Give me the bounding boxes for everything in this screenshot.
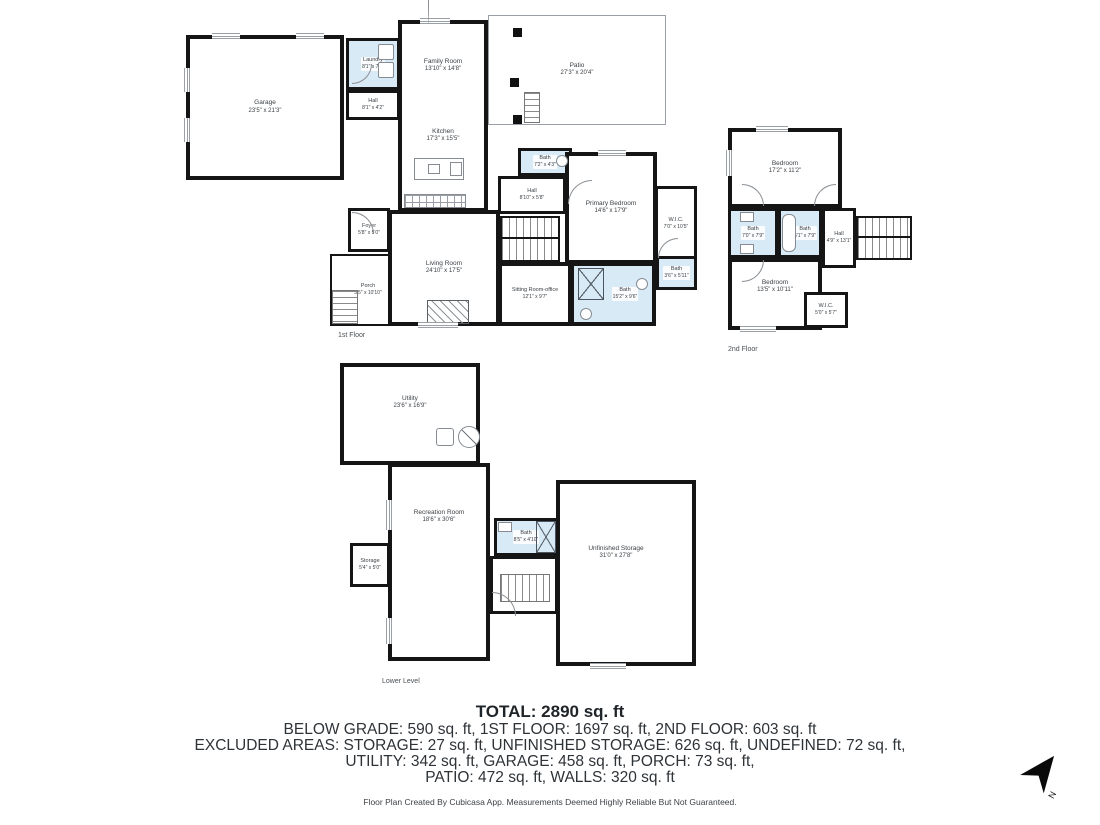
room-label: Bath 7'0" x 7'9" [741,226,765,240]
summary-total: TOTAL: 2890 sq. ft [0,702,1100,722]
room-unfinished-storage: Unfinished Storage 31'0" x 27'8" [556,480,696,666]
door-arc [428,0,429,24]
room-label: Garage 23'5" x 21'3" [249,99,282,115]
room-label: Bath 6'1" x 7'9" [793,226,817,240]
range-icon [450,162,462,176]
sink-icon [428,164,440,174]
room-label: Hall 4'9" x 13'1" [827,231,852,245]
window [386,500,392,530]
room-primary-bedroom: Primary Bedroom 14'6" x 17'9" [565,152,657,264]
room-label: Bath 7'2" x 4'3" [533,155,557,169]
hearth-hatch [427,300,469,324]
room-label: Hall 8'1" x 4'2" [362,98,384,112]
window [212,33,240,39]
room-label: Bath 15'2" x 9'6" [612,287,639,301]
sink-icon [498,522,512,532]
sink-icon [740,212,754,222]
room-garage: Garage 23'5" x 21'3" [186,35,344,180]
hvac-icon [436,428,454,446]
washer-dryer-icon [378,62,394,78]
footer-credit: Floor Plan Created By Cubicasa App. Meas… [0,797,1100,807]
room-family-kitchen [398,20,488,212]
sink-icon [556,155,568,167]
window [184,118,190,142]
summary-line-4: PATIO: 472 sq. ft, WALLS: 320 sq. ft [0,769,1100,787]
water-heater-icon [458,426,480,448]
room-label: Bedroom 13'5" x 10'11" [757,279,793,295]
room-label: W.I.C. 7'0" x 10'5" [664,217,689,231]
room-label: Sitting Room-office 12'1" x 9'7" [512,287,558,301]
shower-icon [578,268,604,300]
sink-icon [740,244,754,254]
room-wic-second: W.I.C. 5'0" x 5'7" [804,292,848,328]
room-label: Family Room 13'10" x 14'8" [398,58,488,74]
floor-label-lower: Lower Level [382,678,420,685]
patio-post [513,115,522,124]
tub-icon [782,214,796,252]
window [598,150,626,156]
room-utility: Utility 23'6" x 16'9" [340,363,480,465]
patio-post [513,28,522,37]
room-hall-second: Hall 4'9" x 13'1" [822,208,856,268]
room-label: Recreation Room 18'6" x 30'6" [414,509,465,525]
staircase-first [500,216,560,262]
staircase-second [856,216,912,260]
room-label: Porch 5'5" x 10'10" [354,283,381,297]
room-hall-first: Hall 8'1" x 4'2" [346,90,400,120]
window [740,326,776,332]
room-label: Kitchen 17'3" x 15'5" [398,128,488,144]
window [420,18,450,24]
room-storage: Storage 5'4" x 5'0" [350,543,390,587]
room-label: Patio 27'3" x 20'4" [561,62,594,78]
patio-steps [524,92,540,123]
sink-icon [636,278,648,290]
floor-label-second: 2nd Floor [728,346,758,353]
room-label: Storage 5'4" x 5'0" [359,558,381,572]
room-label: Unfinished Storage 31'0" x 27'8" [588,545,643,561]
room-label: Bedroom 17'2" x 11'2" [769,160,801,176]
room-label: Hall 8'10" x 5'8" [520,188,545,202]
porch-steps [332,290,358,324]
stove-icon [404,194,466,208]
washer-dryer-icon [378,44,394,60]
room-label: Bath 3'6" x 5'11" [663,266,689,280]
room-label: Living Room 24'10" x 17'5" [426,260,462,276]
window [756,126,788,132]
room-label: Utility 23'6" x 16'9" [394,395,427,411]
room-bath-powder: Bath 3'6" x 5'11" [656,256,697,290]
window [726,150,732,176]
window [184,68,190,92]
shower-icon [536,521,556,553]
window [590,663,626,669]
room-sitting-office: Sitting Room-office 12'1" x 9'7" [498,262,572,326]
floor-label-first: 1st Floor [338,332,365,339]
room-label: W.I.C. 5'0" x 5'7" [815,303,837,317]
window [418,322,458,328]
room-label: Primary Bedroom 14'6" x 17'9" [586,200,637,216]
room-recreation: Recreation Room 18'6" x 30'6" [388,463,490,661]
patio-post [510,78,519,87]
floor-plan-canvas: Patio 27'3" x 20'4" Garage 23'5" x 21'3"… [0,0,1100,825]
room-hall-center: Hall 8'10" x 5'8" [498,176,566,214]
sink-icon [580,308,592,320]
window [386,618,392,644]
window [296,33,324,39]
